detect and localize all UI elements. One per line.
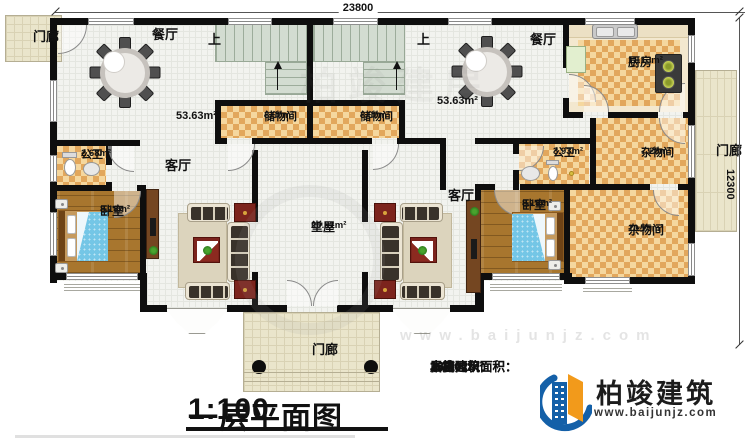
kitchen-area: 11.13m² bbox=[628, 56, 663, 66]
floorplan-canvas: 柏竣建房 www.baijunjz.com 餐厅 餐厅 上 上 53.63m² … bbox=[0, 0, 750, 441]
sofa bbox=[187, 203, 230, 222]
window bbox=[50, 80, 57, 122]
door-arc bbox=[659, 118, 685, 144]
wall bbox=[215, 138, 227, 144]
door-arc bbox=[228, 144, 255, 171]
dimension-line-right bbox=[739, 18, 740, 345]
burner bbox=[662, 60, 675, 73]
headboard bbox=[557, 213, 563, 261]
plant bbox=[470, 207, 479, 216]
window bbox=[448, 18, 492, 25]
pillow bbox=[67, 238, 76, 257]
end-table bbox=[374, 203, 396, 222]
bedroom-area: 8.18m² bbox=[522, 199, 552, 209]
coffee-table bbox=[193, 237, 220, 263]
coffee-table bbox=[410, 237, 437, 263]
window bbox=[333, 18, 378, 25]
wall bbox=[520, 184, 590, 190]
area-value: 53.63m² bbox=[176, 110, 217, 122]
door-arc bbox=[584, 85, 609, 112]
wall bbox=[475, 138, 590, 144]
window bbox=[88, 18, 134, 25]
door-arc bbox=[653, 190, 679, 216]
watermark-circle bbox=[235, 185, 385, 335]
brand-name: 柏竣建筑 bbox=[596, 372, 716, 411]
porch-name: 门廊 bbox=[33, 30, 59, 44]
sink bbox=[521, 166, 540, 181]
window bbox=[50, 155, 57, 182]
sofa bbox=[400, 203, 443, 222]
toilet-tank bbox=[546, 160, 559, 165]
bath-area: 3.93m² bbox=[553, 147, 583, 157]
dining-right-name: 餐厅 bbox=[530, 33, 556, 47]
burner bbox=[662, 76, 675, 89]
area-value: 53.63m² bbox=[437, 95, 478, 107]
round-table-center bbox=[103, 51, 125, 73]
living-name: 客厅 bbox=[165, 159, 191, 173]
wall bbox=[513, 170, 519, 190]
wall bbox=[590, 118, 596, 184]
plan-scale: 1:100 bbox=[188, 393, 270, 427]
window bbox=[492, 273, 560, 280]
sink bbox=[83, 162, 100, 176]
door-arc bbox=[373, 144, 399, 170]
nightstand bbox=[55, 263, 68, 273]
sofa-cushions bbox=[402, 286, 441, 298]
utility-area: 10.75m² bbox=[628, 224, 663, 234]
kitchen-cabinet bbox=[566, 46, 586, 73]
dimension-right-value: 12300 bbox=[724, 169, 736, 209]
wall bbox=[397, 138, 446, 144]
headboard bbox=[59, 211, 65, 261]
bath-area: 2.68m² bbox=[81, 149, 111, 159]
tv-cabinet-right bbox=[466, 200, 481, 293]
end-table-knob bbox=[243, 211, 247, 215]
stat-value: 3.6m bbox=[430, 357, 459, 378]
storage-area: 3.00m² bbox=[360, 111, 390, 121]
utility-area: 7.28m² bbox=[641, 147, 671, 157]
toilet bbox=[548, 166, 558, 181]
brand-logo-icon bbox=[540, 364, 592, 440]
door-arc bbox=[108, 146, 134, 172]
tv-screen bbox=[471, 239, 477, 259]
bedroom-area: 8.18m² bbox=[100, 205, 130, 215]
stair-arrow bbox=[277, 68, 278, 90]
window bbox=[228, 18, 272, 25]
door-arc bbox=[58, 25, 87, 54]
wall bbox=[564, 184, 570, 284]
wall bbox=[563, 112, 583, 118]
tv-screen bbox=[150, 218, 156, 236]
nightstand-knob bbox=[554, 205, 557, 208]
living-name: 客厅 bbox=[448, 189, 474, 203]
wall bbox=[252, 138, 372, 144]
title-underline-shadow bbox=[15, 435, 355, 438]
sofa-cushions bbox=[402, 207, 439, 220]
up-right: 上 bbox=[417, 33, 430, 47]
window bbox=[66, 273, 138, 280]
pillow bbox=[546, 217, 555, 235]
wall bbox=[678, 184, 695, 190]
window bbox=[585, 277, 630, 284]
dining-left-name: 餐厅 bbox=[152, 28, 178, 42]
end-table-knob bbox=[383, 288, 387, 292]
wall bbox=[590, 184, 650, 190]
nightstand-knob bbox=[61, 267, 64, 270]
dimension-top-value: 23800 bbox=[339, 2, 378, 14]
window bbox=[688, 35, 695, 63]
plant bbox=[418, 246, 427, 255]
end-table-knob bbox=[383, 211, 387, 215]
sofa bbox=[400, 282, 445, 300]
toilet bbox=[64, 159, 76, 176]
sofa-cushions bbox=[191, 207, 228, 220]
nightstand bbox=[55, 199, 68, 209]
bed-right bbox=[512, 212, 564, 262]
dining-table-left bbox=[89, 37, 161, 109]
title-underline bbox=[186, 427, 388, 431]
sink-basin bbox=[617, 27, 635, 37]
toilet-tank bbox=[62, 152, 77, 158]
sofa bbox=[185, 282, 230, 300]
storage-area: 3.00m² bbox=[264, 111, 294, 121]
window bbox=[688, 243, 695, 276]
porch-step bbox=[243, 381, 380, 382]
stair-arrow-head bbox=[274, 61, 282, 69]
up-left: 上 bbox=[208, 33, 221, 47]
wall bbox=[55, 185, 112, 191]
porch-step bbox=[243, 372, 380, 373]
nightstand-knob bbox=[554, 264, 557, 267]
sofa-cushions bbox=[189, 286, 228, 298]
wall bbox=[440, 138, 446, 190]
nightstand bbox=[548, 260, 561, 270]
plant bbox=[203, 246, 212, 255]
brand-website: www.baijunjz.com bbox=[594, 407, 717, 419]
porch-name: 门廊 bbox=[312, 343, 338, 357]
nightstand-knob bbox=[61, 203, 64, 206]
plant bbox=[149, 246, 158, 255]
kitchen-sink bbox=[592, 24, 638, 39]
window bbox=[50, 212, 57, 256]
sink-basin bbox=[596, 27, 614, 37]
dimension-line-top bbox=[55, 12, 745, 13]
pillow bbox=[546, 239, 555, 257]
watermark-url: www.baijunjz.com bbox=[400, 327, 657, 344]
pillow bbox=[67, 215, 76, 234]
hall-area: 20.91m² bbox=[311, 221, 346, 231]
tv-cabinet-left bbox=[146, 189, 159, 259]
wall bbox=[608, 112, 658, 118]
window bbox=[688, 125, 695, 178]
floor-drain bbox=[569, 171, 574, 176]
